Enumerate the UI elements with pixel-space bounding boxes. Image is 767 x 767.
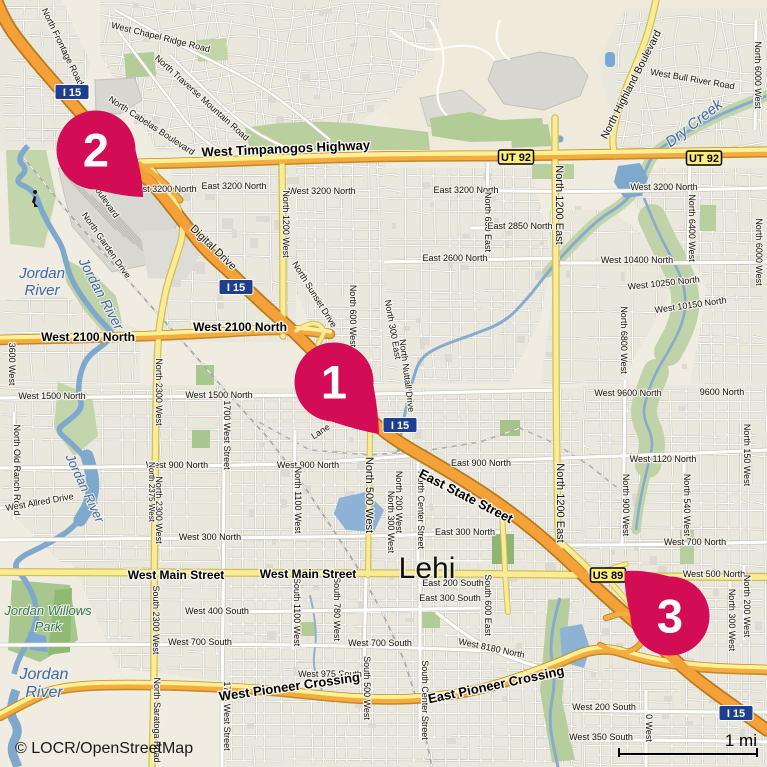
svg-text:North 2375 West: North 2375 West <box>147 462 156 523</box>
svg-text:South 1100 West: South 1100 West <box>292 578 302 647</box>
svg-text:South 600 East: South 600 East <box>483 574 493 636</box>
svg-text:West 400 South: West 400 South <box>185 606 249 616</box>
svg-text:North 1200 East: North 1200 East <box>554 463 566 543</box>
svg-text:1 mi: 1 mi <box>725 731 757 750</box>
svg-text:I 15: I 15 <box>227 282 245 294</box>
svg-text:UT 92: UT 92 <box>501 152 531 164</box>
svg-text:Lehi: Lehi <box>399 552 456 585</box>
svg-text:West 350 South: West 350 South <box>569 732 633 742</box>
svg-text:Jordan Willows: Jordan Willows <box>3 603 92 618</box>
svg-text:© LOCR/OpenStreetMap: © LOCR/OpenStreetMap <box>15 740 193 757</box>
svg-text:West 300 North: West 300 North <box>179 532 241 542</box>
svg-text:West 1120 North: West 1120 North <box>630 454 697 464</box>
svg-text:East 2600 North: East 2600 North <box>422 253 487 263</box>
svg-text:West 2100 North: West 2100 North <box>193 320 287 334</box>
svg-text:North 6000 West: North 6000 West <box>753 41 763 109</box>
svg-text:East 2850 North: East 2850 North <box>487 221 552 231</box>
svg-text:West 3200 North: West 3200 North <box>288 186 355 196</box>
svg-text:North 300 West: North 300 West <box>386 491 396 554</box>
svg-text:North 1100 West: North 1100 West <box>293 467 303 534</box>
svg-text:East 300 South: East 300 South <box>419 593 481 603</box>
svg-text:North 6000 West: North 6000 West <box>754 218 764 286</box>
svg-text:1: 1 <box>321 356 347 409</box>
svg-text:UT 92: UT 92 <box>689 153 719 165</box>
svg-text:North 300 West: North 300 West <box>727 589 737 652</box>
svg-text:River: River <box>25 684 63 701</box>
svg-text:North 1200 West: North 1200 West <box>281 190 291 258</box>
svg-text:South 500 West: South 500 West <box>362 656 372 720</box>
svg-text:US 89: US 89 <box>593 570 624 582</box>
svg-text:West 1500 North: West 1500 North <box>185 390 252 400</box>
svg-text:0 West: 0 West <box>644 714 654 742</box>
svg-text:West 700 South: West 700 South <box>168 637 232 647</box>
svg-text:West 700 South: West 700 South <box>348 638 412 648</box>
svg-text:1700 West Street: 1700 West Street <box>222 400 232 470</box>
svg-text:West 2100 North: West 2100 North <box>41 330 135 344</box>
svg-text:Jordan: Jordan <box>18 265 65 282</box>
svg-text:I 15: I 15 <box>63 87 81 99</box>
svg-text:I 15: I 15 <box>391 420 409 432</box>
svg-text:River: River <box>24 282 60 299</box>
svg-text:Jordan: Jordan <box>19 666 69 683</box>
svg-text:3600 West: 3600 West <box>7 343 17 386</box>
svg-text:West 9600 North: West 9600 North <box>594 388 661 398</box>
svg-text:West 1500 North: West 1500 North <box>18 391 85 401</box>
svg-text:North 1200 East: North 1200 East <box>553 165 565 245</box>
svg-text:Park: Park <box>35 619 63 634</box>
svg-text:3: 3 <box>657 590 683 643</box>
svg-text:East 900 North: East 900 North <box>451 458 511 468</box>
svg-text:West 700 North: West 700 North <box>664 537 726 547</box>
svg-text:North 900 West: North 900 West <box>621 474 631 537</box>
svg-text:North 500 West: North 500 West <box>363 457 375 533</box>
svg-text:I 15: I 15 <box>727 708 745 720</box>
svg-text:West 500 North: West 500 North <box>683 569 745 579</box>
svg-text:North 6800 West: North 6800 West <box>619 306 629 374</box>
svg-text:North 6400 West: North 6400 West <box>687 194 697 262</box>
svg-text:West 200 South: West 200 South <box>572 702 636 712</box>
svg-text:South 2300 West: South 2300 West <box>151 586 161 655</box>
svg-text:East 300 North: East 300 North <box>435 527 495 537</box>
svg-text:9600 North: 9600 North <box>700 387 745 397</box>
svg-text:2: 2 <box>83 124 109 177</box>
svg-text:South 780 West: South 780 West <box>332 577 342 641</box>
svg-text:West Main Street: West Main Street <box>260 567 356 581</box>
svg-text:North 200 West: North 200 West <box>742 575 752 638</box>
svg-text:East 3200 North: East 3200 North <box>201 181 266 191</box>
svg-text:West 900 North: West 900 North <box>277 460 339 470</box>
svg-text:North 150 West: North 150 West <box>742 424 752 487</box>
svg-text:North 2300 West: North 2300 West <box>154 358 164 426</box>
svg-text:North 600 West: North 600 West <box>348 285 358 348</box>
svg-text:North 540 West: North 540 West <box>682 474 692 537</box>
svg-text:West 10400 North: West 10400 North <box>601 255 673 265</box>
svg-text:West 3200 North: West 3200 North <box>630 182 697 192</box>
svg-text:West Main Street: West Main Street <box>128 568 224 582</box>
